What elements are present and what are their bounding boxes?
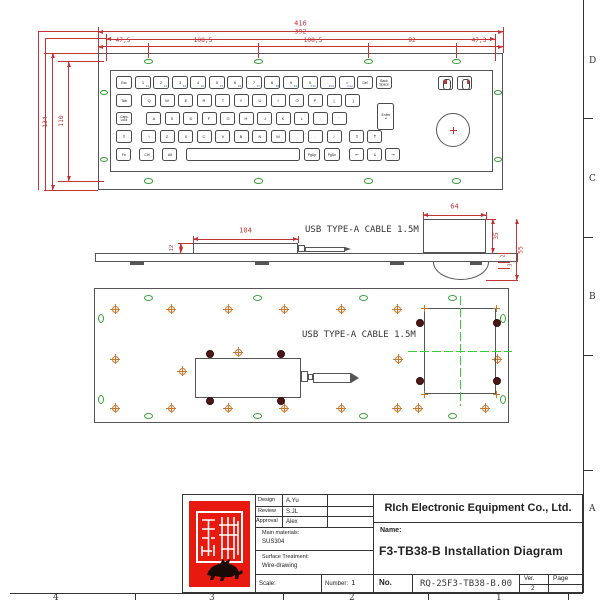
ext-line xyxy=(486,280,518,281)
no-label: No. xyxy=(379,579,392,587)
ext-line xyxy=(45,38,46,190)
key-F: F xyxy=(202,112,217,125)
key-5: 5F5 xyxy=(209,76,225,89)
key-1: 1F1 xyxy=(135,76,151,89)
scale-label: Scale: xyxy=(259,581,276,587)
key-label: F xyxy=(208,116,210,120)
key-label: \ xyxy=(148,134,149,138)
usb-plug xyxy=(313,373,351,383)
dim-text-134: 134 xyxy=(43,116,50,127)
corner-mark xyxy=(424,305,425,312)
key-Tab: Tab xyxy=(116,94,132,107)
screw-cross xyxy=(418,403,419,413)
key-label: Z xyxy=(166,134,168,138)
ext-line xyxy=(498,268,510,269)
key-]: ] xyxy=(345,94,360,107)
mouse-left-click-button xyxy=(438,76,453,90)
grid-line xyxy=(282,495,283,527)
plate-foot xyxy=(390,262,404,265)
grid-line xyxy=(327,495,328,527)
dim-text-392: 392 xyxy=(295,28,307,35)
key-label: PgUp xyxy=(308,153,316,157)
screw-cross xyxy=(171,403,172,413)
key-label: [ xyxy=(333,98,334,102)
mounting-plate-side xyxy=(95,253,518,262)
screw-cross xyxy=(228,403,229,413)
key-label: H xyxy=(245,116,248,120)
mouse-button-highlight xyxy=(467,80,470,84)
mounting-hole xyxy=(254,59,263,65)
key-label: U xyxy=(258,98,261,102)
mounting-hole xyxy=(452,178,461,184)
design-label: Design xyxy=(258,498,275,504)
fkey-label: F10 xyxy=(311,84,316,87)
dim-arrow xyxy=(498,30,503,34)
key-label: B xyxy=(240,134,243,138)
key-[: [ xyxy=(327,94,342,107)
surface-label: Surface Treatment: xyxy=(262,555,309,561)
plate-foot xyxy=(255,262,269,265)
mounting-hole xyxy=(448,413,457,419)
ver-value: 2 xyxy=(531,586,535,593)
fkey-label: F8 xyxy=(275,84,279,87)
screw-dark xyxy=(493,377,501,385)
mounting-hole xyxy=(98,314,104,323)
key-label: X xyxy=(184,134,187,138)
dim-arrow xyxy=(423,213,428,217)
key-PgUp: PgUp xyxy=(304,148,320,161)
key-→: → xyxy=(385,148,400,161)
zone-number-1: 1 xyxy=(496,594,502,600)
key-label: , xyxy=(296,134,297,138)
mounting-hole xyxy=(144,295,153,301)
dim-text-12: 12 xyxy=(170,245,176,252)
key-label: 9 xyxy=(290,80,292,84)
screw-dark xyxy=(416,319,424,327)
cable-connector xyxy=(298,245,305,252)
key-S: S xyxy=(165,112,180,125)
approval-label: Approval xyxy=(256,519,278,525)
key-label: ← xyxy=(355,152,359,157)
zone-tick xyxy=(283,593,284,600)
key-2: 2F2 xyxy=(153,76,169,89)
key-H: H xyxy=(239,112,254,125)
key-A: A xyxy=(146,112,161,125)
page-label: Page xyxy=(553,576,568,583)
screw-dark xyxy=(416,377,424,385)
zone-tick xyxy=(583,470,593,471)
mounting-hole xyxy=(359,295,368,301)
key-Alt: Alt xyxy=(162,148,177,161)
key-D: D xyxy=(183,112,198,125)
fkey-label: F9 xyxy=(294,84,298,87)
key-J: J xyxy=(257,112,272,125)
key-label: V xyxy=(221,134,224,138)
key-label: I xyxy=(278,98,279,102)
mounting-hole xyxy=(98,395,104,404)
key-Del: Del xyxy=(357,76,373,89)
mounting-hole xyxy=(254,178,263,184)
dim-line xyxy=(193,239,298,240)
key-8: 8F8 xyxy=(264,76,280,89)
mounting-hole xyxy=(500,395,506,404)
dim-text-seg: 47,3 xyxy=(472,37,487,44)
dim-line xyxy=(68,62,69,182)
ext-line xyxy=(38,31,98,32)
mounting-hole xyxy=(253,295,262,301)
surface-value: Wire-drawing xyxy=(262,563,297,569)
key-;: ; xyxy=(313,112,328,125)
key-label: 5 xyxy=(216,80,218,84)
design-value: A.Yu xyxy=(286,498,299,504)
usb-controller-bottom xyxy=(195,358,301,398)
company-name: RIch Electronic Equipment Co., Ltd. xyxy=(373,503,583,514)
usb-cable xyxy=(305,247,345,252)
mounting-hole xyxy=(144,178,153,184)
screw-cross xyxy=(485,403,486,413)
key-Enter-↵: Enter ↵ xyxy=(377,103,394,130)
zone-letter-B: B xyxy=(589,293,596,302)
ext-line xyxy=(495,34,496,61)
dim-text-64: 64 xyxy=(450,203,458,210)
mounting-hole xyxy=(364,178,373,184)
review-label: Review xyxy=(258,509,276,515)
screw-cross xyxy=(228,304,229,314)
key-label: Y xyxy=(240,98,243,102)
key-label: ↓ xyxy=(373,152,377,157)
materials-value: SUS304 xyxy=(262,539,284,545)
dim-text-seg: 108,5 xyxy=(194,37,213,44)
key-⇧: ⇧ xyxy=(349,130,364,143)
zone-tick xyxy=(583,237,593,238)
key-=: =F12 xyxy=(339,76,355,89)
mouse-right-click-button xyxy=(457,76,472,90)
dim-text-seg: 108,5 xyxy=(304,37,323,44)
key-R: R xyxy=(197,94,212,107)
key-label: ; xyxy=(320,116,321,120)
dim-arrow xyxy=(106,37,111,41)
dim-arrow xyxy=(515,219,519,224)
key-label: Q xyxy=(147,98,150,102)
key-.: . xyxy=(308,130,323,143)
key-label: 6 xyxy=(234,80,236,84)
key-label: . xyxy=(315,134,316,138)
ext-line xyxy=(58,61,104,62)
zone-tick xyxy=(583,118,593,119)
key-label: S xyxy=(171,116,174,120)
key-label: C xyxy=(203,134,206,138)
zone-letter-C: C xyxy=(589,175,596,184)
drawing-name: F3-TB38-B Installation Diagram xyxy=(379,545,563,557)
corner-mark xyxy=(424,391,425,398)
key-label: L xyxy=(301,116,303,120)
key-O: O xyxy=(289,94,304,107)
key-Y: Y xyxy=(234,94,249,107)
fkey-label: F5 xyxy=(220,84,224,87)
dim-text-2: 2 xyxy=(501,254,506,257)
mounting-hole xyxy=(359,413,368,419)
dim-line xyxy=(106,39,495,40)
cable-label: USB TYPE-A CABLE 1.5M xyxy=(305,226,419,235)
screw-cross xyxy=(397,403,398,413)
dim-arrow xyxy=(293,237,298,241)
mounting-hole xyxy=(364,59,373,65)
dim-arrow xyxy=(51,53,55,58)
zone-tick xyxy=(583,355,593,356)
screw-cross xyxy=(238,347,239,357)
key-/: / xyxy=(327,130,342,143)
key-3: 3F3 xyxy=(172,76,188,89)
mounting-hole xyxy=(253,413,262,419)
key-L: L xyxy=(294,112,309,125)
fkey-label: F6 xyxy=(238,84,242,87)
grid-line xyxy=(255,516,374,517)
screw-cross xyxy=(115,304,116,314)
screw-cross xyxy=(115,403,116,413)
screw-dark xyxy=(206,397,214,405)
key-label: Alt xyxy=(167,153,171,157)
key-label: A xyxy=(152,116,155,120)
key-label: E xyxy=(184,98,187,102)
dim-text-104: 104 xyxy=(239,227,252,234)
key-label: R xyxy=(203,98,206,102)
key-label: N xyxy=(258,134,261,138)
ext-line xyxy=(58,181,104,182)
dim-arrow xyxy=(67,176,71,181)
dim-text-110: 110 xyxy=(59,116,66,127)
key-Caps-Lock: Caps Lock xyxy=(116,112,132,125)
key-Fn: Fn xyxy=(116,148,131,161)
dim-arrow xyxy=(98,30,103,34)
key-X: X xyxy=(178,130,193,143)
key-label: 4 xyxy=(197,80,199,84)
dim-arrow xyxy=(67,62,71,67)
key-W: W xyxy=(160,94,175,107)
key-label: Enter ↵ xyxy=(381,113,390,120)
plate-foot xyxy=(130,262,144,265)
key-label: 1 xyxy=(141,80,143,84)
drawing-border-right xyxy=(583,0,584,593)
dim-text-416: 416 xyxy=(294,20,307,27)
mounting-hole xyxy=(448,295,457,301)
key-⇧: ⇧ xyxy=(116,130,132,143)
dim-arrow xyxy=(491,248,495,253)
centerline-v xyxy=(460,296,461,406)
key-label: W xyxy=(165,98,169,102)
key-PgDn: PgDn xyxy=(324,148,340,161)
key--: -F11 xyxy=(320,76,336,89)
key-,: , xyxy=(289,130,304,143)
grid-line xyxy=(255,495,256,594)
fkey-label: F1 xyxy=(145,84,149,87)
key-N: N xyxy=(252,130,267,143)
plug-tip xyxy=(351,373,359,383)
ext-line xyxy=(486,212,487,219)
screw-dark xyxy=(206,350,214,358)
key-↑: ↑ xyxy=(367,130,382,143)
dim-line xyxy=(98,46,503,47)
key-label: P xyxy=(314,98,317,102)
key-label: Fn xyxy=(121,153,125,157)
dim-arrow xyxy=(491,219,495,224)
trackball-dome xyxy=(433,262,489,280)
ext-line xyxy=(45,38,106,39)
screw-cross xyxy=(284,304,285,314)
usb-controller-side xyxy=(193,243,298,254)
dim-text-55: 55 xyxy=(518,246,525,254)
dim-arrow xyxy=(51,185,55,190)
key-←: ← xyxy=(349,148,364,161)
zone-tick xyxy=(568,593,569,600)
dim-text-seg: 47,5 xyxy=(116,37,131,44)
key-M: M xyxy=(271,130,286,143)
key-\: \ xyxy=(141,130,156,143)
screw-dark xyxy=(277,350,285,358)
key-6: 6F6 xyxy=(227,76,243,89)
key-↓: ↓ xyxy=(367,148,382,161)
grid-line xyxy=(255,574,374,575)
key-4: 4F4 xyxy=(190,76,206,89)
key-label: 8 xyxy=(271,80,273,84)
installation-drawing: DCBA432141639247,5108,5108,59247,3134110… xyxy=(0,0,600,600)
key-': ' xyxy=(332,112,347,125)
screw-cross xyxy=(284,403,285,413)
screw-cross xyxy=(397,304,398,314)
key-Q: Q xyxy=(141,94,156,107)
mouse-icon xyxy=(462,79,470,90)
key-T: T xyxy=(215,94,230,107)
key-label: 2 xyxy=(160,80,162,84)
ext-line xyxy=(498,253,510,254)
mounting-hole xyxy=(494,157,502,162)
key-space xyxy=(186,148,300,161)
approval-value: Alex xyxy=(286,519,298,525)
screw-cross xyxy=(341,403,342,413)
key-label: J xyxy=(264,116,266,120)
screw-cross xyxy=(115,354,116,364)
cable-connector xyxy=(301,371,308,382)
mouse-icon xyxy=(443,79,451,90)
key-Esc: Esc xyxy=(116,76,132,89)
trackball-box-side xyxy=(423,219,486,253)
dim-arrow xyxy=(179,248,183,253)
mounting-hole xyxy=(452,59,461,65)
number-value: 1 xyxy=(351,580,355,587)
screw-cross xyxy=(497,354,498,364)
key-label: M xyxy=(277,134,280,138)
materials-label: Main materials: xyxy=(262,531,299,537)
mouse-button-highlight xyxy=(444,80,447,84)
corner-mark xyxy=(496,391,497,398)
key-label: Ctrl xyxy=(144,153,149,157)
key-Back-Space: Back Space xyxy=(376,76,392,89)
key-G: G xyxy=(220,112,235,125)
fkey-label: F4 xyxy=(201,84,205,87)
key-label: G xyxy=(226,116,229,120)
key-label: T xyxy=(221,98,223,102)
key-label: K xyxy=(282,116,285,120)
key-Z: Z xyxy=(160,130,175,143)
key-B: B xyxy=(234,130,249,143)
ext-line xyxy=(38,31,39,190)
grid-line xyxy=(519,584,582,585)
fkey-label: F2 xyxy=(164,84,168,87)
key-label: Tab xyxy=(121,99,127,103)
cable-label: USB TYPE-A CABLE 1.5M xyxy=(302,331,416,340)
grid-line xyxy=(255,527,374,528)
fkey-label: F3 xyxy=(183,84,187,87)
key-label: ' xyxy=(339,116,340,120)
dim-arrow xyxy=(98,45,103,49)
mounting-hole xyxy=(144,59,153,65)
grid-line xyxy=(255,506,374,507)
dim-arrow xyxy=(193,237,198,241)
key-E: E xyxy=(178,94,193,107)
key-7: 7F7 xyxy=(246,76,262,89)
corner-mark xyxy=(496,305,497,312)
key-label: 3 xyxy=(179,80,181,84)
key-label: O xyxy=(295,98,298,102)
screw-cross xyxy=(341,304,342,314)
dim-arrow xyxy=(481,213,486,217)
ver-label: Ver. xyxy=(524,576,534,582)
mounting-hole xyxy=(100,157,108,162)
dim-arrow xyxy=(498,45,503,49)
dim-arrow xyxy=(490,37,495,41)
grid-line xyxy=(373,574,583,575)
key-Ctrl: Ctrl xyxy=(139,148,154,161)
key-label: → xyxy=(391,152,395,157)
dim-line xyxy=(52,53,53,190)
zone-number-2: 2 xyxy=(349,594,355,600)
zone-letter-A: A xyxy=(589,505,596,514)
key-label: ] xyxy=(352,98,353,102)
key-label: / xyxy=(333,134,334,138)
fkey-label: F7 xyxy=(257,84,261,87)
dim-text-3: 3 xyxy=(508,263,513,266)
ext-line xyxy=(498,262,510,263)
key-9: 9F9 xyxy=(283,76,299,89)
zone-number-4: 4 xyxy=(53,594,59,600)
dim-arrow xyxy=(515,275,519,280)
key-P: P xyxy=(308,94,323,107)
zone-number-3: 3 xyxy=(209,594,215,600)
dim-line xyxy=(423,215,486,216)
zone-letter-D: D xyxy=(589,57,596,66)
grid-line xyxy=(255,550,374,551)
trackball-cross xyxy=(453,127,454,134)
key-label: PgDn xyxy=(328,153,336,157)
key-label: ↑ xyxy=(373,134,377,139)
ext-line xyxy=(44,190,98,191)
key-label: Caps Lock xyxy=(120,115,127,122)
ext-line xyxy=(503,27,504,53)
fkey-label: F11 xyxy=(330,84,335,87)
seal-stamp-graphic xyxy=(189,501,250,587)
mounting-hole xyxy=(494,90,502,95)
zone-tick xyxy=(428,593,429,600)
key-I: I xyxy=(271,94,286,107)
mounting-hole xyxy=(100,90,108,95)
mounting-hole xyxy=(144,413,153,419)
key-0: 0F10 xyxy=(302,76,318,89)
cable-tip xyxy=(345,247,351,251)
drawing-number: RQ-25F3-TB38-B.00 xyxy=(413,580,519,589)
grid-line xyxy=(321,574,322,594)
screw-cross xyxy=(182,366,183,376)
key-label: ⇧ xyxy=(355,134,359,139)
key-C: C xyxy=(197,130,212,143)
